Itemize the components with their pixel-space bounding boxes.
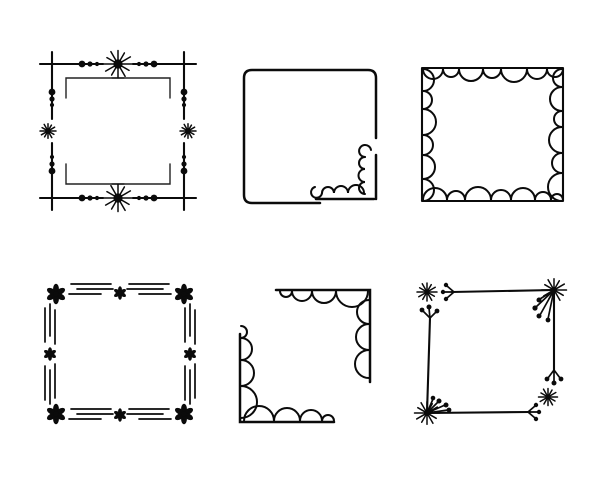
starburst-icon xyxy=(40,51,196,212)
frame-scalloped-corner-brackets xyxy=(230,278,380,434)
dot-triplet xyxy=(49,61,188,202)
scallop-run xyxy=(241,291,369,421)
flower-icon xyxy=(43,284,197,424)
scallop-run xyxy=(423,69,563,201)
frame-collection xyxy=(0,0,612,490)
corner-bracket xyxy=(66,78,170,184)
frame-twig-starburst-berries xyxy=(402,266,594,462)
frame-outline xyxy=(422,68,563,201)
triple-hatch-lines xyxy=(45,284,195,419)
asterisk-star-icon xyxy=(417,283,558,406)
frame-inner-scallop-border xyxy=(412,58,572,210)
frame-square-curl-scallop-corner xyxy=(232,58,388,208)
frame-flowers-triple-hatch xyxy=(34,274,206,434)
frame-crossed-corners-stars-dots xyxy=(26,40,210,218)
spiral-curl-icon xyxy=(311,145,371,198)
frame-outline xyxy=(244,70,376,203)
corner-bracket xyxy=(240,290,370,422)
scallop-run xyxy=(322,157,365,194)
